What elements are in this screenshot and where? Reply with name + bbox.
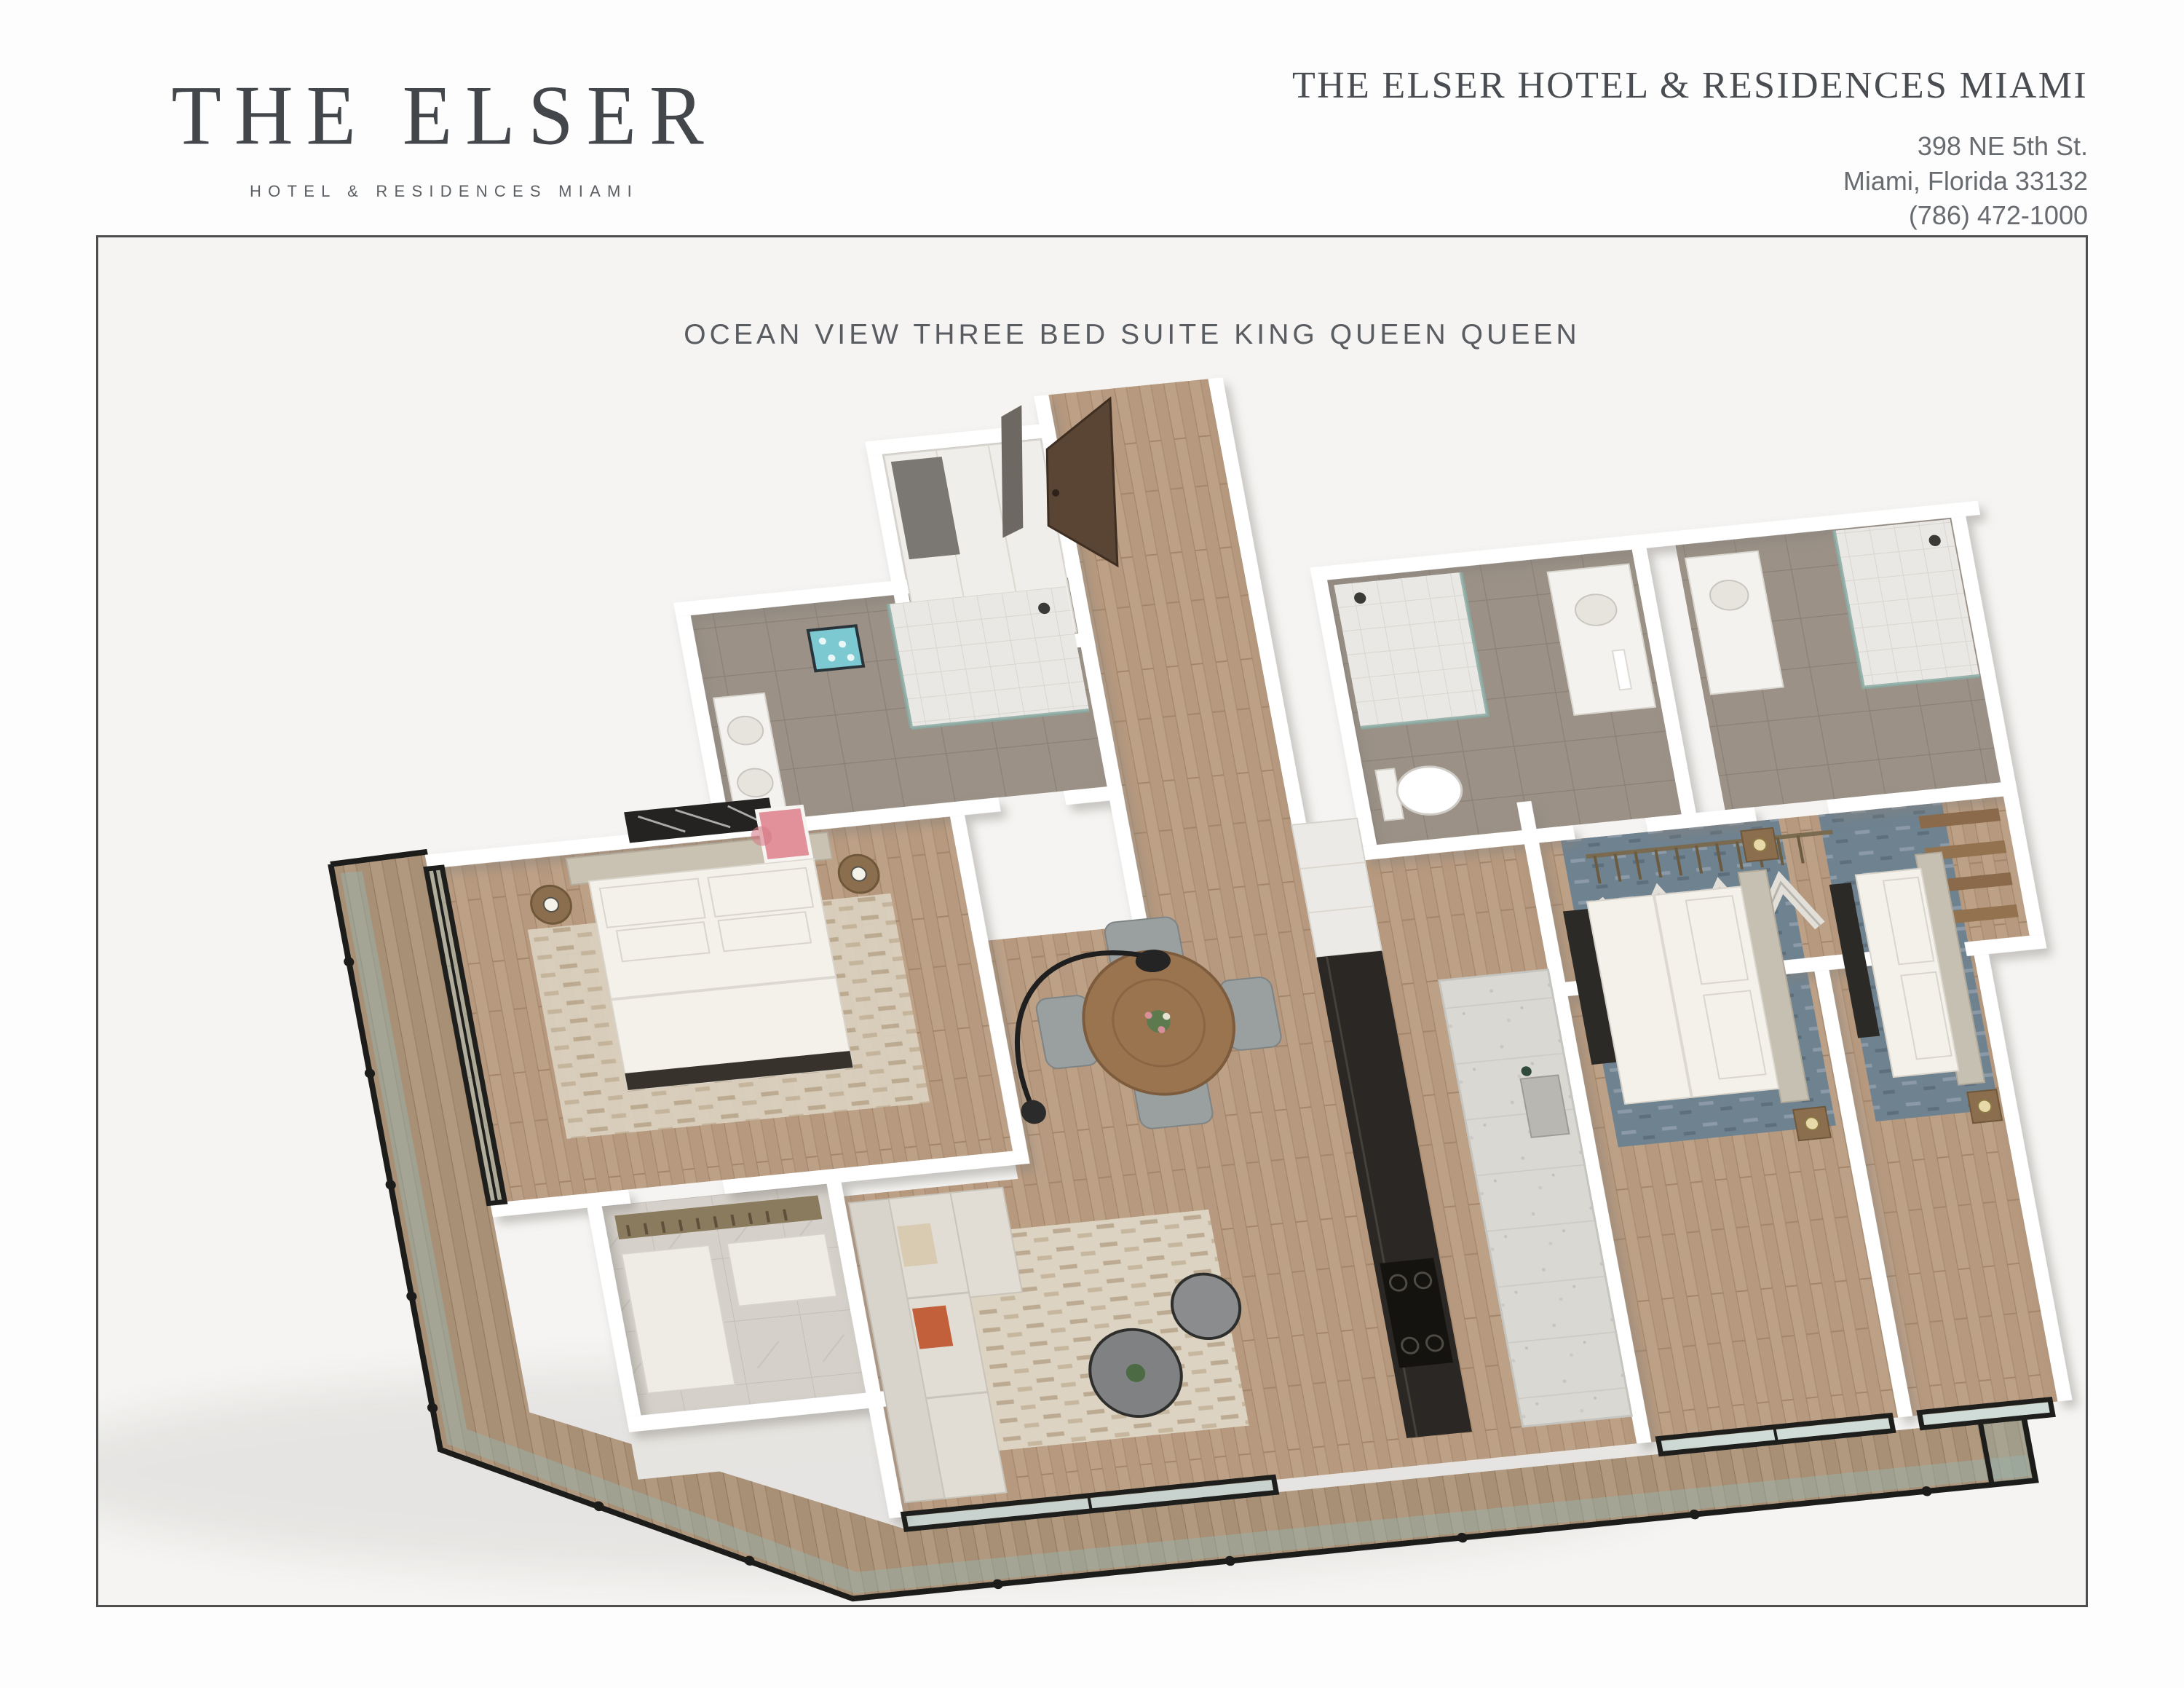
door-handle-icon [1052, 489, 1059, 497]
brand-logo-title: THE ELSER [135, 67, 753, 165]
hotel-name: THE ELSER HOTEL & RESIDENCES MIAMI [1292, 64, 2088, 107]
contact-block: THE ELSER HOTEL & RESIDENCES MIAMI 398 N… [1292, 64, 2088, 233]
fact-sheet-page: THE ELSER HOTEL & RESIDENCES MIAMI THE E… [0, 0, 2184, 1688]
teal-tile-art [808, 626, 863, 671]
address-line-2: Miami, Florida 33132 [1292, 164, 2088, 199]
address-line-1: 398 NE 5th St. [1292, 129, 2088, 164]
brand-logo: THE ELSER HOTEL & RESIDENCES MIAMI [135, 69, 753, 201]
floor-plan-render [98, 237, 2086, 1605]
master-shower [888, 586, 1089, 728]
phone-number: (786) 472-1000 [1292, 198, 2088, 233]
brand-logo-subtitle: HOTEL & RESIDENCES MIAMI [135, 182, 753, 201]
hotel-address: 398 NE 5th St. Miami, Florida 33132 (786… [1292, 129, 2088, 233]
isometric-plan [253, 306, 2086, 1605]
floor-plan-sheet: OCEAN VIEW THREE BED SUITE KING QUEEN QU… [96, 235, 2088, 1607]
railing-corner-panel [1980, 1418, 2035, 1485]
